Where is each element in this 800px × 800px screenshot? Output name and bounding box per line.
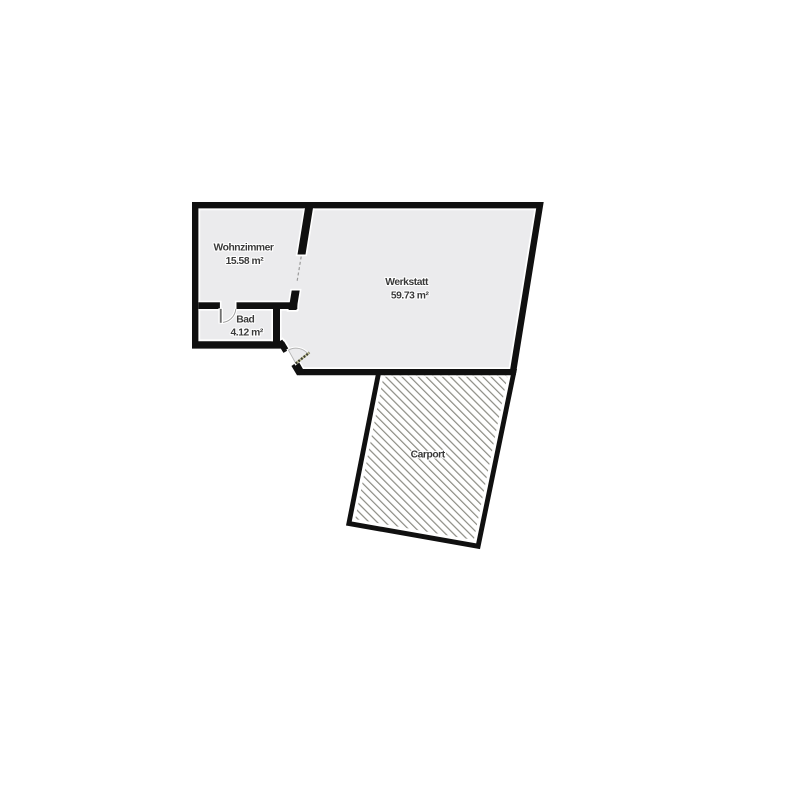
svg-text:Werkstatt: Werkstatt — [385, 277, 429, 288]
svg-text:Bad: Bad — [236, 315, 254, 326]
svg-text:15.58 m²: 15.58 m² — [226, 256, 265, 267]
svg-text:Wohnzimmer: Wohnzimmer — [214, 242, 274, 253]
svg-text:59.73 m²: 59.73 m² — [391, 291, 430, 302]
svg-text:Carport: Carport — [411, 449, 446, 460]
svg-text:4.12 m²: 4.12 m² — [231, 328, 264, 339]
